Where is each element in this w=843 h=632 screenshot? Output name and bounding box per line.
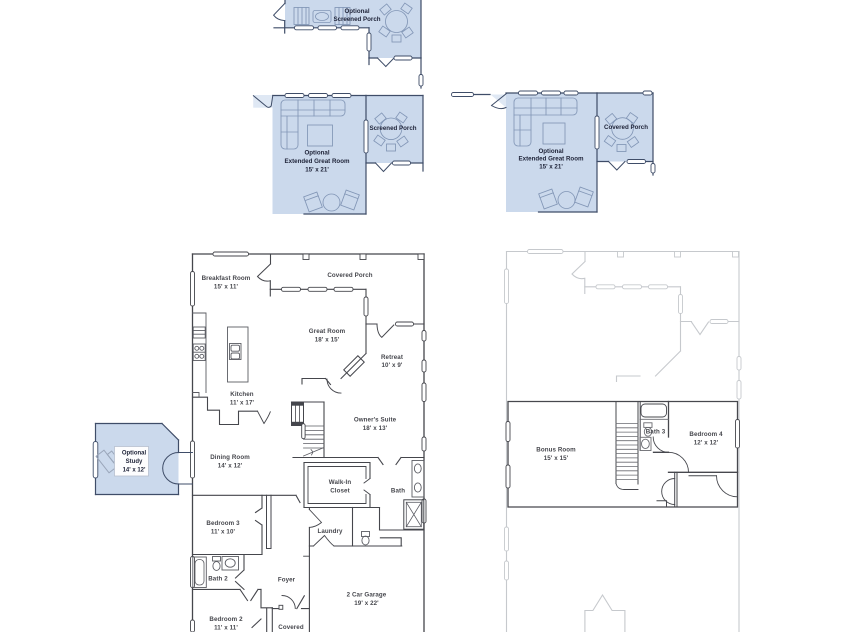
svg-text:Optional: Optional bbox=[538, 148, 563, 155]
svg-text:Kitchen: Kitchen bbox=[230, 391, 254, 398]
svg-text:15' x 21': 15' x 21' bbox=[305, 166, 329, 173]
svg-text:Covered: Covered bbox=[278, 624, 304, 631]
svg-text:Bath 2: Bath 2 bbox=[208, 576, 228, 583]
svg-text:15' x 11': 15' x 11' bbox=[214, 284, 239, 291]
svg-text:Breakfast Room: Breakfast Room bbox=[202, 275, 251, 282]
svg-text:Extended Great Room: Extended Great Room bbox=[285, 158, 350, 165]
svg-text:Screened Porch: Screened Porch bbox=[333, 16, 380, 23]
svg-text:14' x 12': 14' x 12' bbox=[123, 468, 146, 474]
svg-text:11' x 10': 11' x 10' bbox=[211, 529, 236, 536]
svg-text:Bonus Room: Bonus Room bbox=[536, 447, 576, 454]
svg-text:11' x 17': 11' x 17' bbox=[230, 400, 255, 407]
svg-text:14' x 12': 14' x 12' bbox=[218, 463, 243, 470]
svg-text:15' x 21': 15' x 21' bbox=[539, 164, 563, 171]
svg-text:Extended Great Room: Extended Great Room bbox=[519, 155, 584, 162]
svg-text:Dining Room: Dining Room bbox=[210, 454, 250, 461]
svg-text:Bedroom 3: Bedroom 3 bbox=[206, 520, 240, 527]
svg-text:Great Room: Great Room bbox=[309, 328, 346, 335]
svg-text:18' x 15': 18' x 15' bbox=[315, 337, 340, 344]
svg-text:Foyer: Foyer bbox=[278, 577, 296, 584]
svg-text:2 Car Garage: 2 Car Garage bbox=[347, 592, 387, 599]
svg-text:Covered Porch: Covered Porch bbox=[327, 272, 372, 279]
svg-text:Bath: Bath bbox=[391, 488, 405, 495]
svg-text:Closet: Closet bbox=[330, 488, 350, 495]
svg-text:Laundry: Laundry bbox=[317, 528, 343, 535]
svg-text:Optional: Optional bbox=[122, 451, 147, 457]
svg-text:Optional: Optional bbox=[304, 149, 329, 156]
svg-text:Bath 3: Bath 3 bbox=[646, 429, 666, 436]
svg-text:Screened Porch: Screened Porch bbox=[369, 125, 416, 132]
svg-text:11' x 11': 11' x 11' bbox=[214, 625, 238, 632]
svg-text:Covered Porch: Covered Porch bbox=[604, 124, 648, 131]
svg-text:Bedroom 2: Bedroom 2 bbox=[209, 616, 243, 623]
svg-text:Bedroom 4: Bedroom 4 bbox=[689, 431, 723, 438]
svg-text:Owner's Suite: Owner's Suite bbox=[354, 417, 397, 424]
svg-text:18' x 13': 18' x 13' bbox=[363, 425, 388, 432]
svg-text:Walk-In: Walk-In bbox=[329, 479, 352, 486]
svg-text:19' x 22': 19' x 22' bbox=[354, 600, 379, 607]
svg-text:12' x 12': 12' x 12' bbox=[694, 440, 719, 447]
svg-text:Retreat: Retreat bbox=[381, 354, 403, 361]
svg-text:Optional: Optional bbox=[344, 8, 369, 15]
svg-text:Study: Study bbox=[126, 459, 143, 465]
svg-text:15' x 15': 15' x 15' bbox=[544, 455, 569, 462]
svg-text:10' x 9': 10' x 9' bbox=[382, 362, 403, 369]
